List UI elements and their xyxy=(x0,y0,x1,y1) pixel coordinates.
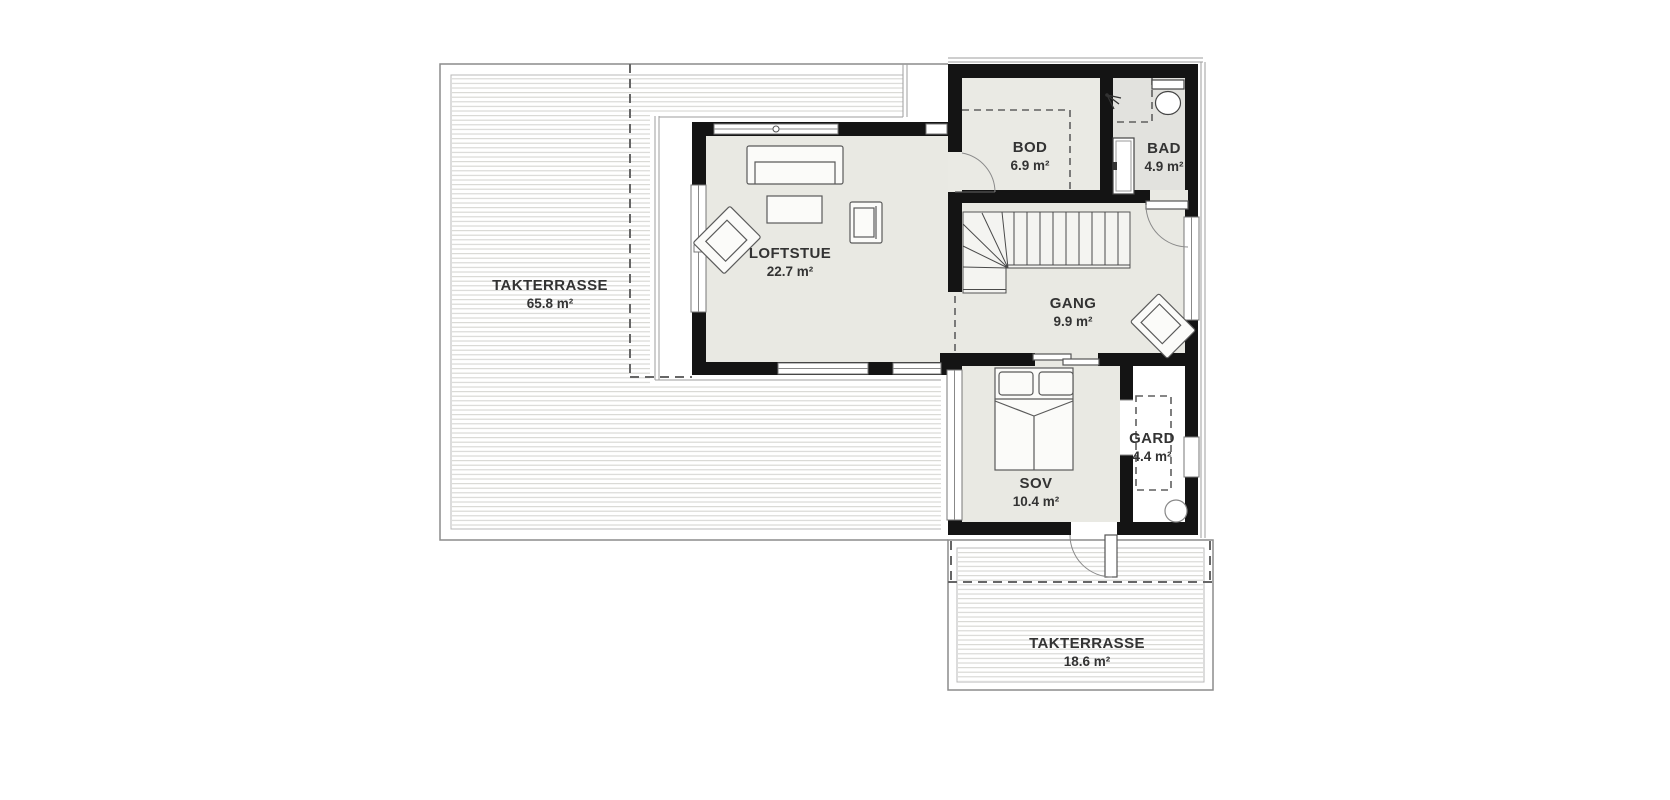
room-label-gang: GANG 9.9 m² xyxy=(1050,294,1097,330)
room-labels: TAKTERRASSE 65.8 m² LOFTSTUE 22.7 m² BOD… xyxy=(0,0,1670,800)
room-name: TAKTERRASSE xyxy=(492,276,608,295)
room-area: 18.6 m² xyxy=(1029,653,1145,670)
room-name: BOD xyxy=(1010,138,1049,157)
room-area: 65.8 m² xyxy=(492,295,608,312)
room-area: 10.4 m² xyxy=(1013,493,1060,510)
room-name: BAD xyxy=(1144,139,1183,158)
floor-plan: TAKTERRASSE 65.8 m² LOFTSTUE 22.7 m² BOD… xyxy=(0,0,1670,800)
room-label-takterrasse-main: TAKTERRASSE 65.8 m² xyxy=(492,276,608,312)
room-label-takterrasse-lower: TAKTERRASSE 18.6 m² xyxy=(1029,634,1145,670)
room-name: GARD xyxy=(1129,429,1175,448)
room-label-bod: BOD 6.9 m² xyxy=(1010,138,1049,174)
room-label-gard: GARD 4.4 m² xyxy=(1129,429,1175,465)
room-label-sov: SOV 10.4 m² xyxy=(1013,474,1060,510)
room-label-loftstue: LOFTSTUE 22.7 m² xyxy=(749,244,831,280)
room-area: 4.9 m² xyxy=(1144,158,1183,175)
room-label-bad: BAD 4.9 m² xyxy=(1144,139,1183,175)
room-name: SOV xyxy=(1013,474,1060,493)
room-area: 9.9 m² xyxy=(1050,313,1097,330)
room-name: TAKTERRASSE xyxy=(1029,634,1145,653)
room-area: 22.7 m² xyxy=(749,263,831,280)
room-area: 4.4 m² xyxy=(1129,448,1175,465)
room-area: 6.9 m² xyxy=(1010,157,1049,174)
room-name: LOFTSTUE xyxy=(749,244,831,263)
room-name: GANG xyxy=(1050,294,1097,313)
